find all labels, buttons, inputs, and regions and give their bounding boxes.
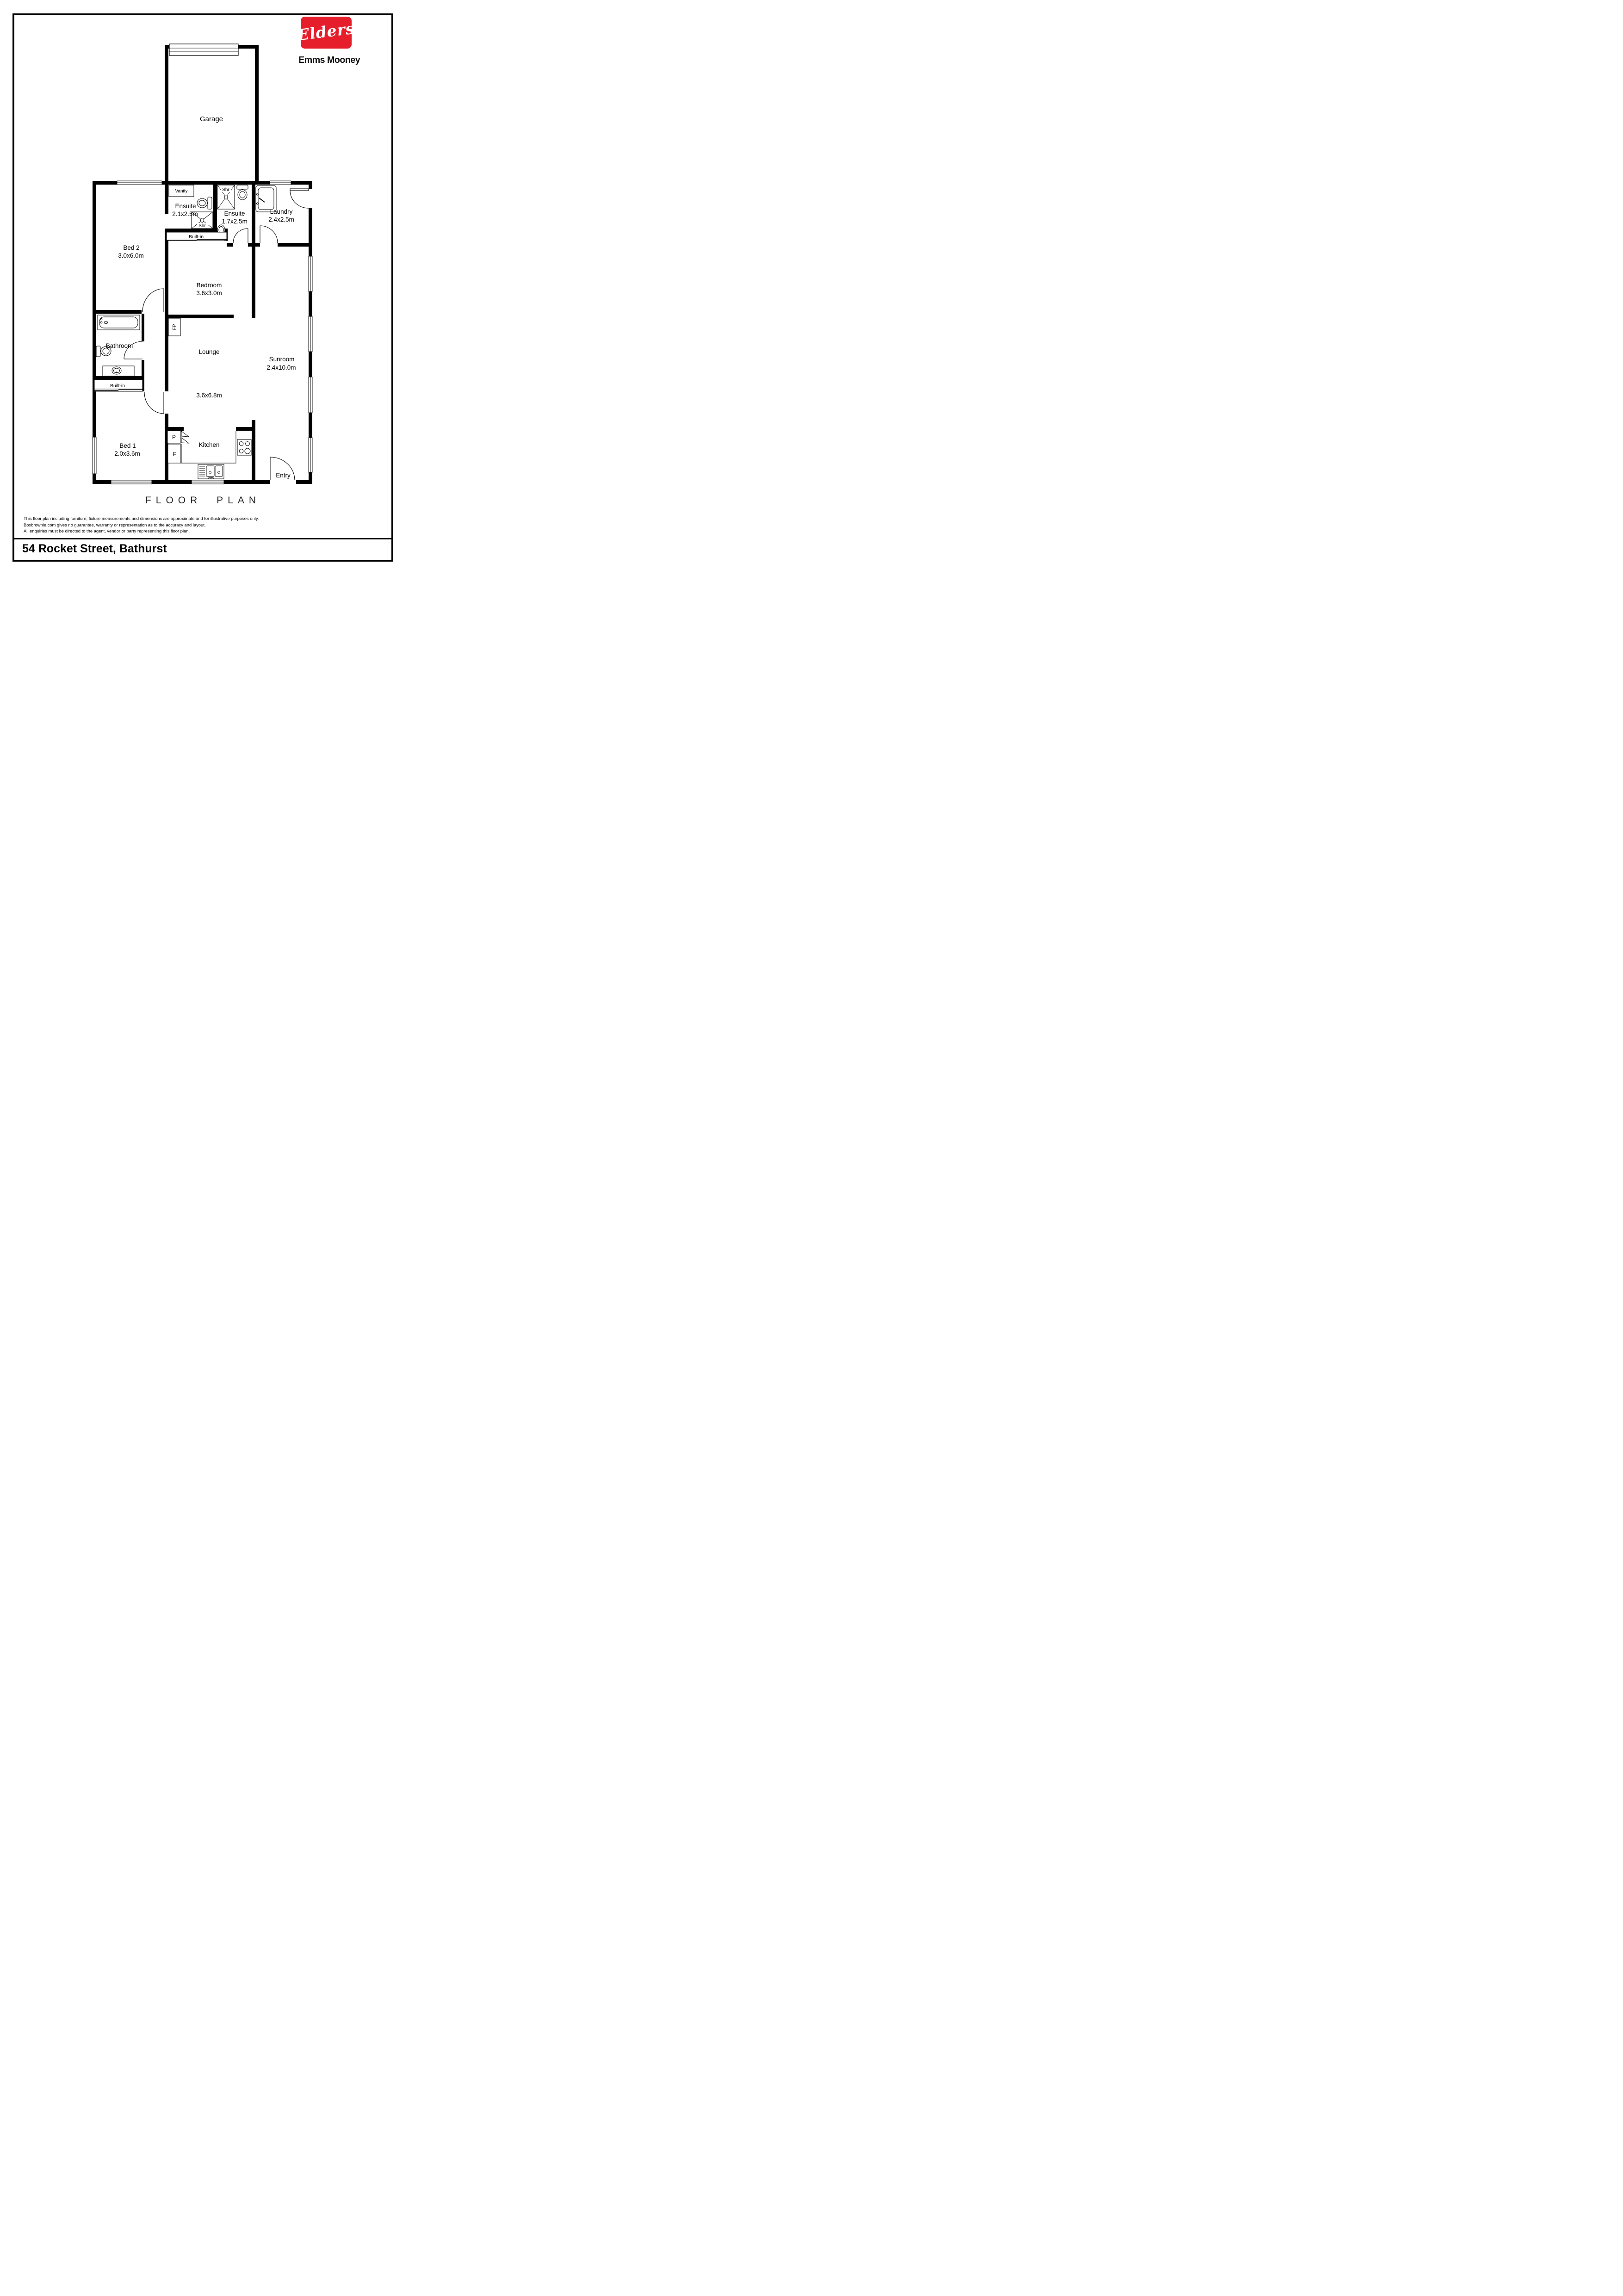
room-label-sunroom: Sunroom xyxy=(269,356,295,363)
room-dims-bed2: 3.0x6.0m xyxy=(118,252,144,259)
disclaimer-line: Boxbrownie.com gives no guarantee, warra… xyxy=(24,522,375,528)
pantry-bifold-door xyxy=(181,431,189,443)
wall-segment xyxy=(93,376,142,380)
wall-segment xyxy=(165,45,168,181)
room-dims-ensuite-second: 1.7x2.5m xyxy=(222,218,248,225)
door-laundry-interior xyxy=(260,226,278,243)
disclaimer-line: All enquiries must be directed to the ag… xyxy=(24,528,375,534)
wall-segment xyxy=(255,45,259,181)
label-built-in-top: Built-in xyxy=(189,234,204,240)
vanity-basin-symbol xyxy=(103,366,134,376)
window xyxy=(117,181,162,185)
walls xyxy=(93,45,312,484)
window xyxy=(309,316,312,352)
window xyxy=(309,438,312,472)
room-label-bathroom: Bathroom xyxy=(106,342,133,349)
toilet-symbol xyxy=(237,185,248,200)
floor-plan-drawing: Garage Bed 2 3.0x6.0m Ensuite 2.1x2.5m E… xyxy=(0,0,406,574)
door-laundry-exterior xyxy=(290,189,309,208)
room-dims-bedroom: 3.6x3.0m xyxy=(196,290,222,297)
sink-symbol xyxy=(198,464,224,479)
door-opening xyxy=(142,310,165,314)
door-opening xyxy=(165,214,168,229)
door-bed2 xyxy=(142,289,164,312)
room-label-garage: Garage xyxy=(200,115,223,123)
room-label-bedroom: Bedroom xyxy=(197,282,222,289)
floor-plan-page: Elders Emms Mooney xyxy=(0,0,406,574)
footer-separator-line xyxy=(13,538,392,539)
floor-plan-title: FLOOR PLAN xyxy=(0,495,406,506)
room-label-kitchen: Kitchen xyxy=(198,441,219,448)
room-label-lounge: Lounge xyxy=(198,348,219,355)
room-label-entry: Entry xyxy=(276,472,291,479)
door-ensuite-second xyxy=(233,229,248,243)
wall-segment xyxy=(165,427,184,431)
door-opening xyxy=(309,189,312,208)
window xyxy=(309,377,312,413)
label-shower-top: Shr xyxy=(222,187,229,192)
room-label-bed1: Bed 1 xyxy=(119,442,136,449)
door-opening xyxy=(142,341,144,360)
door-opening xyxy=(233,243,248,247)
room-dims-ensuite-main: 2.1x2.5m xyxy=(172,210,198,217)
window xyxy=(309,256,312,291)
stove-symbol xyxy=(237,439,251,455)
room-label-bed2: Bed 2 xyxy=(123,244,139,251)
label-fridge: F xyxy=(173,451,176,458)
window xyxy=(93,437,96,474)
wall-segment xyxy=(236,427,255,431)
garage-door xyxy=(169,44,238,56)
label-pantry: P xyxy=(172,434,176,440)
window xyxy=(192,480,224,484)
room-label-ensuite-main: Ensuite xyxy=(175,203,196,210)
wall-segment xyxy=(168,315,234,318)
room-label-ensuite-second: Ensuite xyxy=(224,210,245,217)
label-vanity: Vanity xyxy=(175,189,187,194)
window xyxy=(270,181,291,185)
disclaimer: This floor plan including furniture, fix… xyxy=(24,515,375,534)
door-opening xyxy=(165,391,168,414)
room-dims-sunroom: 2.4x10.0m xyxy=(266,364,296,371)
room-dims-laundry: 2.4x2.5m xyxy=(268,216,294,223)
disclaimer-line: This floor plan including furniture, fix… xyxy=(24,515,375,522)
property-address: 54 Rocket Street, Bathurst xyxy=(22,542,383,556)
wall-opening xyxy=(252,318,255,420)
room-dims-bed1: 2.0x3.6m xyxy=(114,450,140,457)
label-shower-bottom: Shr xyxy=(198,223,206,229)
door-opening xyxy=(260,243,278,247)
wall-segment xyxy=(213,185,217,229)
room-label-laundry: Laundry xyxy=(270,208,293,215)
door-hall-bed1 xyxy=(144,392,164,414)
door-opening xyxy=(270,480,296,484)
label-built-in-bed1: Built-in xyxy=(110,383,125,389)
room-dims-lounge: 3.6x6.8m xyxy=(196,392,222,399)
label-fireplace: FP xyxy=(172,324,177,330)
bathtub-symbol xyxy=(98,315,140,330)
toilet-symbol xyxy=(197,197,212,209)
window xyxy=(111,480,152,484)
